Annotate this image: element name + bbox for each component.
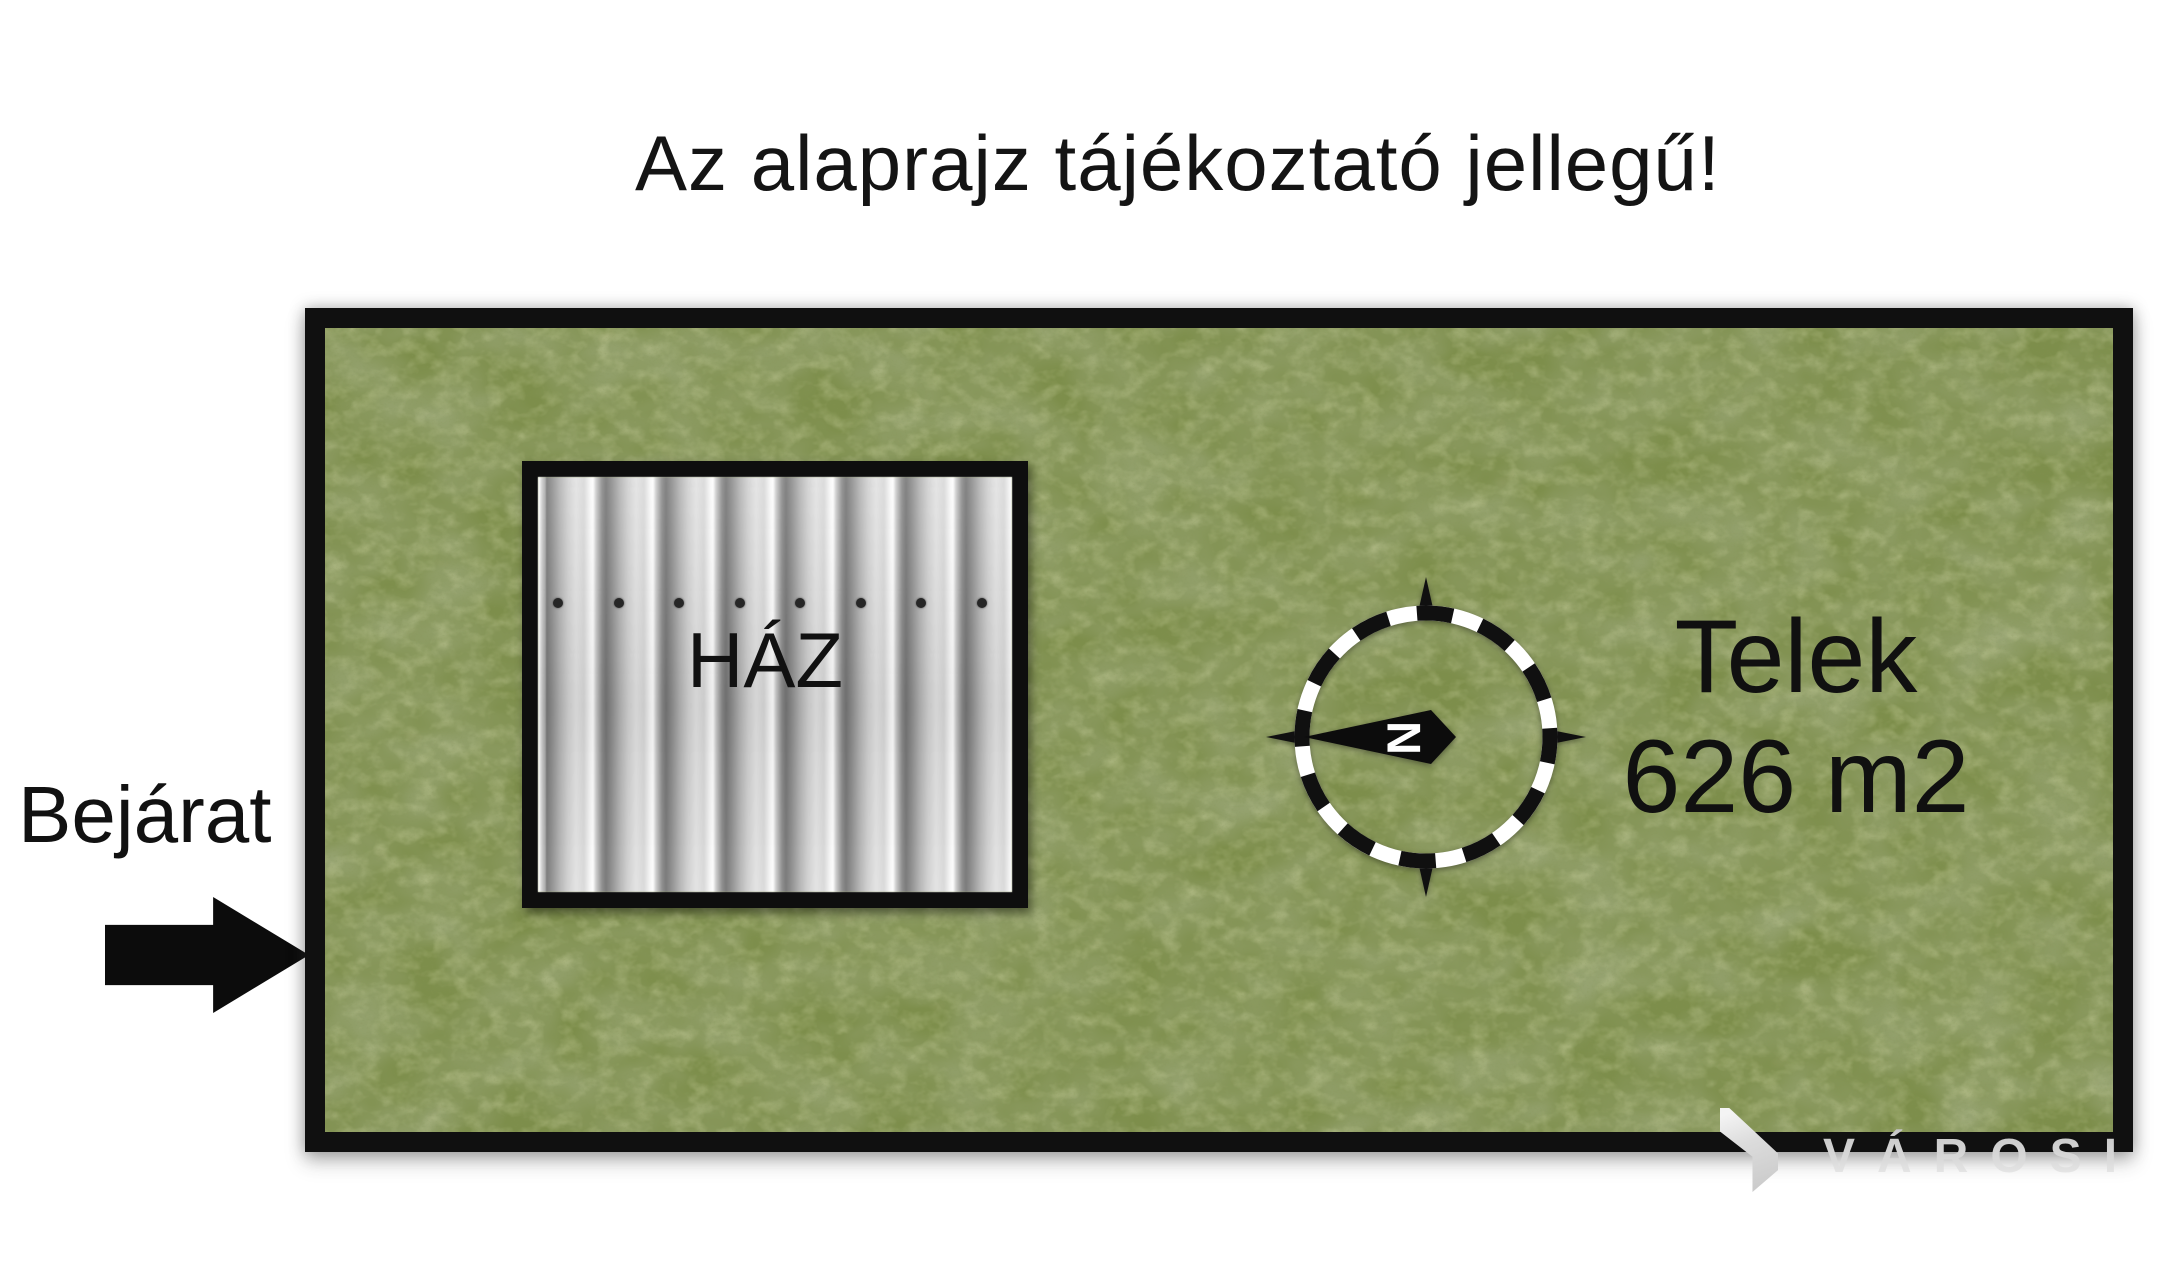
page-title: Az alaprajz tájékoztató jellegű! <box>635 124 1721 202</box>
house: HÁZ <box>522 461 1028 908</box>
plot-name: Telek <box>1516 598 2076 718</box>
plot-area: HÁZ N Telek 626 m2 <box>305 308 2133 1152</box>
house-label: HÁZ <box>538 477 1012 892</box>
house-label-text: HÁZ <box>687 615 843 706</box>
plot-area-value: 626 m2 <box>1516 718 2076 838</box>
entrance-label: Bejárat <box>18 775 271 855</box>
compass-north-letter: N <box>1378 721 1431 755</box>
site-plan-page: Az alaprajz tájékoztató jellegű! Bejárat <box>0 0 2169 1280</box>
entrance-arrow-icon <box>105 897 309 1013</box>
watermark-text: VÁROSI <box>1823 1129 2139 1184</box>
plot-size-label: Telek 626 m2 <box>1516 598 2076 837</box>
